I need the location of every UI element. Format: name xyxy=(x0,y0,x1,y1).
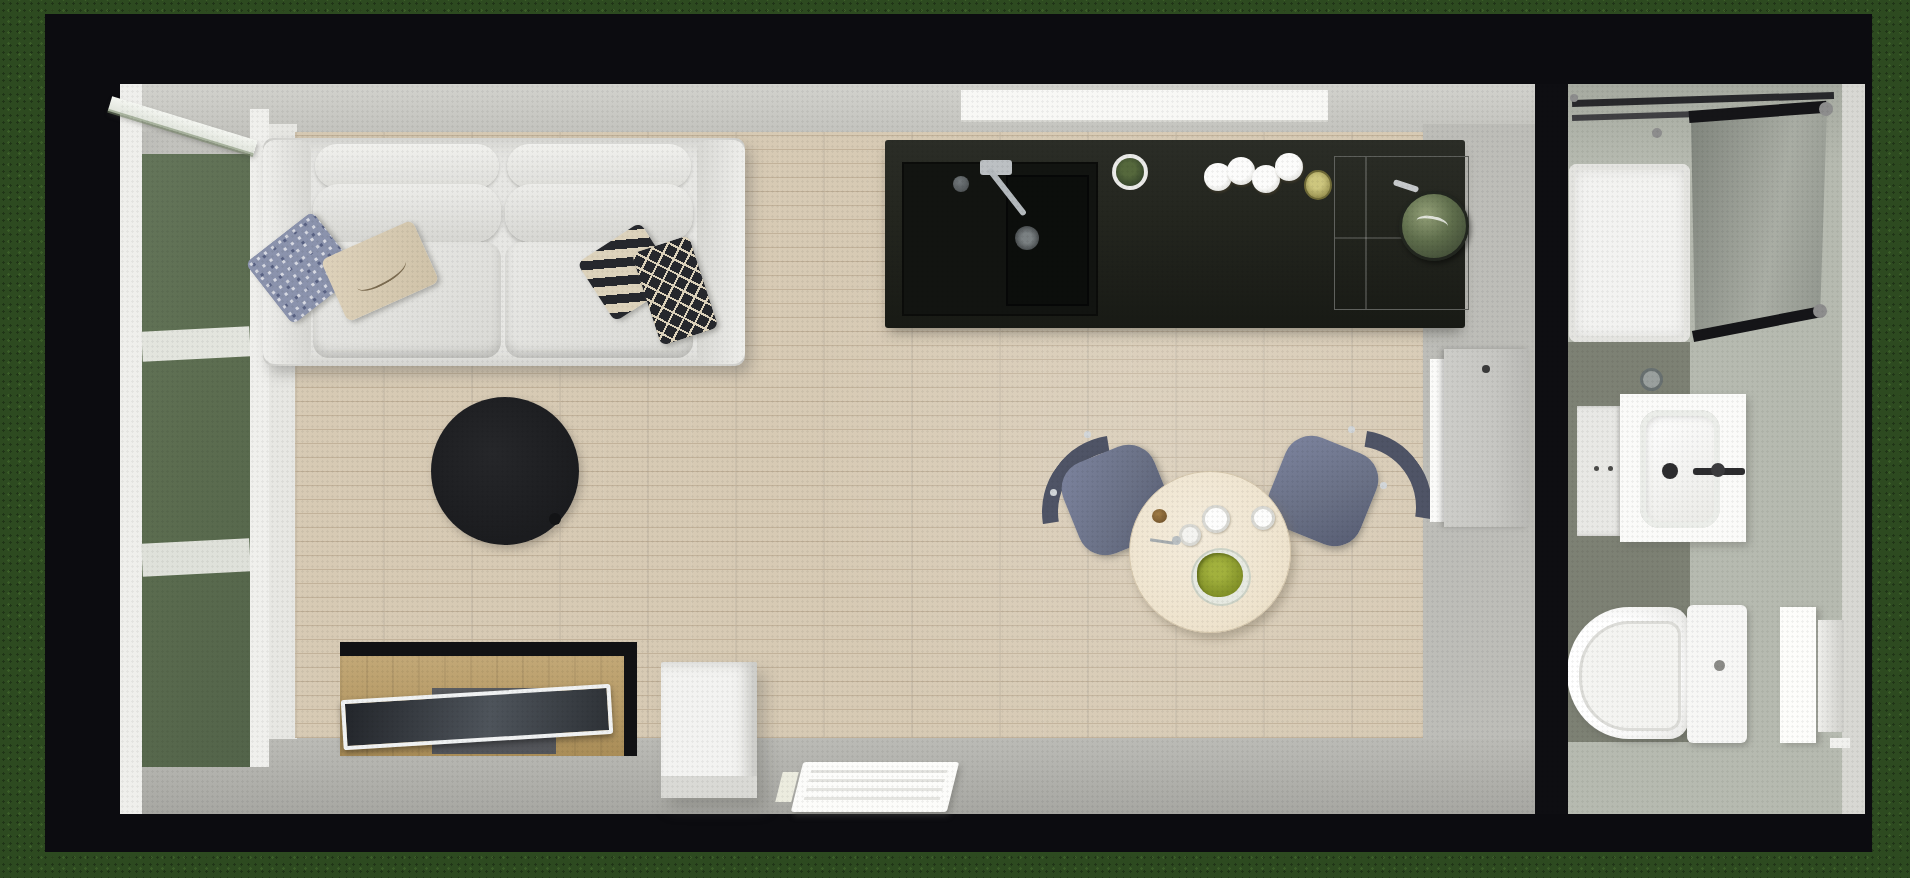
shower-drain xyxy=(1640,368,1663,391)
cup[interactable] xyxy=(1251,506,1275,530)
left-door-frame-outer xyxy=(120,84,142,814)
right-door-jamb xyxy=(1818,620,1844,732)
sink-drain xyxy=(1015,226,1039,250)
chair-foot xyxy=(1380,482,1387,489)
cabinet-handle xyxy=(1608,466,1613,471)
pan-glint xyxy=(1415,213,1449,233)
kitchen-counter[interactable] xyxy=(885,140,1465,328)
cup[interactable] xyxy=(1179,524,1201,546)
pan-handle xyxy=(1393,179,1420,193)
plate[interactable] xyxy=(1275,153,1303,181)
cup[interactable] xyxy=(1202,505,1230,533)
sofa-back-cushion xyxy=(505,144,693,240)
rail-connector xyxy=(1652,128,1662,138)
salad xyxy=(1197,553,1243,597)
rail-connector xyxy=(1570,94,1578,102)
toilet-seat xyxy=(1579,621,1681,731)
bathroom-door-threshold xyxy=(1430,359,1444,522)
cushion-roll xyxy=(505,184,693,242)
door-handle[interactable] xyxy=(1482,365,1490,373)
small-bowl[interactable] xyxy=(1304,170,1332,200)
tv-stand[interactable] xyxy=(340,642,637,756)
dining-table[interactable] xyxy=(1129,471,1291,633)
chair-foot xyxy=(1050,489,1057,496)
cabinet-handle xyxy=(1594,466,1599,471)
heater-slats xyxy=(803,770,947,804)
cooktop[interactable] xyxy=(1334,156,1469,310)
toilet[interactable] xyxy=(1567,607,1689,739)
shower-tray[interactable] xyxy=(1569,164,1690,342)
flush-button[interactable] xyxy=(1714,660,1725,671)
sofa[interactable] xyxy=(263,138,745,366)
plant-leaves xyxy=(1116,158,1144,186)
vanity-sink[interactable] xyxy=(1620,394,1746,542)
right-door-step xyxy=(1830,738,1850,748)
cabinet-front-face xyxy=(661,776,757,798)
side-cabinet[interactable] xyxy=(1577,406,1622,536)
left-door-muntin xyxy=(141,538,251,577)
plate[interactable] xyxy=(1227,157,1255,185)
chair-foot xyxy=(1348,426,1355,433)
glass-corner-knob xyxy=(1813,304,1827,318)
plant-pot[interactable] xyxy=(1112,154,1148,190)
green-pan[interactable] xyxy=(1399,191,1469,261)
left-door-glass-pane[interactable] xyxy=(142,154,250,767)
bathroom-right-wall-face xyxy=(1842,84,1865,814)
floorplan-scene xyxy=(0,0,1910,878)
faucet-knob xyxy=(1711,463,1725,477)
faucet-spout[interactable] xyxy=(1662,463,1678,479)
bathroom xyxy=(1568,84,1865,814)
sink-control-knob[interactable] xyxy=(953,176,969,192)
spoon-head xyxy=(1172,536,1181,545)
salad-plate[interactable] xyxy=(1191,548,1251,606)
spoon[interactable] xyxy=(1150,538,1174,544)
rug-detail xyxy=(549,513,561,525)
small-food-item xyxy=(1152,509,1167,523)
chair-foot xyxy=(1084,431,1091,438)
white-cabinet[interactable] xyxy=(661,662,757,798)
shower-glass-panel[interactable] xyxy=(1691,108,1827,340)
round-black-rug[interactable] xyxy=(431,397,579,545)
exterior-wall xyxy=(45,14,1872,852)
pillow-script-text xyxy=(352,253,410,297)
right-door-leaf[interactable] xyxy=(1780,607,1816,743)
partition-wall xyxy=(1535,84,1568,814)
glass-corner-knob xyxy=(1819,102,1833,116)
bathroom-door-leaf[interactable] xyxy=(1444,349,1529,527)
toilet-tank xyxy=(1687,605,1747,743)
tv-stand-side-edge xyxy=(622,642,637,756)
cushion-roll xyxy=(315,144,499,188)
wall-heater[interactable] xyxy=(791,762,959,812)
left-door-muntin xyxy=(141,326,250,362)
window-top[interactable] xyxy=(961,90,1328,122)
interior-floor xyxy=(120,84,1865,814)
cushion-roll xyxy=(507,144,691,188)
